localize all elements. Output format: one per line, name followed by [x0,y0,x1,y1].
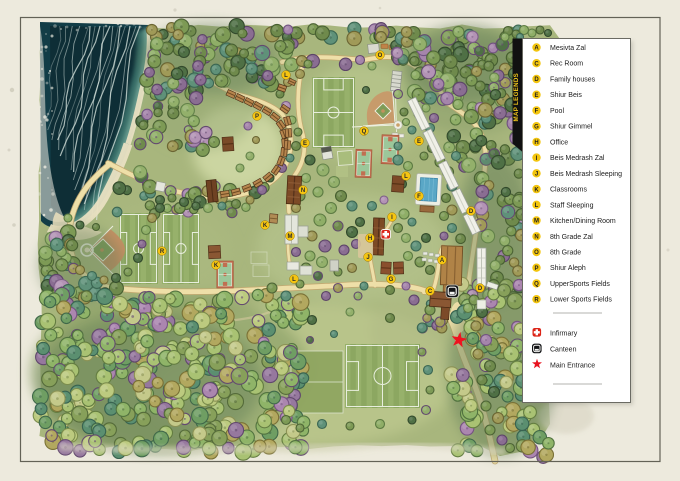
svg-text:N: N [534,235,538,241]
svg-text:E: E [303,141,307,147]
svg-text:Pool: Pool [550,108,564,115]
svg-text:F: F [535,109,539,115]
svg-text:G: G [534,124,539,130]
svg-text:A: A [440,258,445,264]
svg-text:Infirmary: Infirmary [550,330,578,337]
svg-text:Shiur Beis: Shiur Beis [550,92,582,99]
svg-text:C: C [534,61,539,67]
svg-text:Classrooms: Classrooms [550,187,587,194]
svg-text:K: K [534,187,539,193]
svg-text:Canteen: Canteen [550,346,577,353]
svg-text:O: O [534,250,539,256]
svg-text:E: E [534,93,538,99]
svg-text:8th Grade Zal: 8th Grade Zal [550,234,593,241]
svg-text:Staff Sleeping: Staff Sleeping [550,202,594,209]
svg-text:Shiur Aleph: Shiur Aleph [550,265,586,272]
svg-text:Mesivta Zal: Mesivta Zal [550,45,586,52]
svg-text:H: H [368,236,372,242]
svg-text:L: L [404,174,408,180]
svg-text:Q: Q [362,129,367,135]
svg-text:D: D [478,286,483,292]
svg-text:MAP LEGENDS: MAP LEGENDS [513,73,520,122]
svg-text:Kitchen/Dining Room: Kitchen/Dining Room [550,218,616,225]
svg-text:Main Entrance: Main Entrance [550,362,595,369]
svg-text:L: L [284,73,288,79]
svg-text:8th Grade: 8th Grade [550,250,581,257]
svg-text:UpperSports Fields: UpperSports Fields [550,281,610,288]
svg-text:A: A [534,46,539,52]
svg-text:Lower Sports Fields: Lower Sports Fields [550,297,612,304]
svg-text:R: R [534,297,539,303]
svg-text:Family houses: Family houses [550,77,596,84]
svg-text:K: K [214,263,219,269]
svg-text:K: K [263,223,268,229]
svg-text:Office: Office [550,139,568,146]
svg-text:P: P [534,266,538,272]
svg-text:Q: Q [534,282,539,288]
svg-text:Rec Room: Rec Room [550,61,583,68]
svg-text:C: C [428,289,433,295]
svg-text:E: E [417,139,421,145]
svg-text:H: H [534,140,538,146]
svg-text:M: M [288,234,293,240]
svg-text:D: D [534,77,539,83]
svg-text:P: P [255,114,259,120]
svg-text:Shiur Gimmel: Shiur Gimmel [550,124,593,131]
svg-text:O: O [378,53,383,59]
svg-text:Beis Medrash Zal: Beis Medrash Zal [550,155,605,162]
svg-text:Beis Medrash Sleeping: Beis Medrash Sleeping [550,171,622,178]
svg-text:G: G [389,277,394,283]
svg-text:D: D [469,209,474,215]
svg-text:L: L [535,203,539,209]
svg-text:M: M [534,219,539,225]
svg-text:R: R [160,249,165,255]
svg-text:N: N [301,188,305,194]
svg-text:F: F [417,194,421,200]
svg-text:J: J [366,255,369,261]
svg-text:J: J [535,172,538,178]
svg-text:L: L [292,277,296,283]
